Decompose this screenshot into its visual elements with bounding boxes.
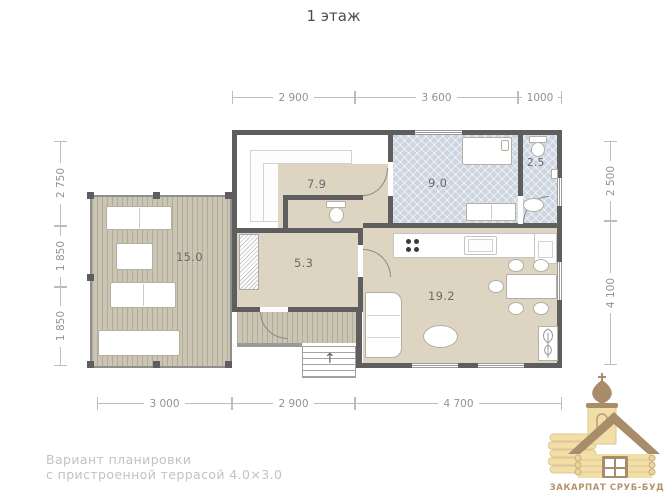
dimension: 3 000 <box>97 397 232 410</box>
chair <box>488 280 504 293</box>
dresser <box>466 203 516 221</box>
logo-graphic <box>548 372 666 478</box>
wall-cabinet <box>551 169 558 179</box>
wall <box>237 307 358 312</box>
window <box>557 262 562 300</box>
dimension-label: 3 000 <box>144 398 184 410</box>
terrace-post <box>87 192 94 199</box>
dimension-label: 4 700 <box>438 398 478 410</box>
plant-leaf <box>539 327 557 360</box>
dimension: 2 900 <box>232 91 355 104</box>
wardrobe <box>239 234 259 290</box>
wall <box>232 130 237 312</box>
dimension-label: 1 850 <box>55 236 67 276</box>
kitchen-sink-icon <box>464 236 497 255</box>
chair <box>533 259 549 272</box>
caption: Вариант планировки с пристроенной террас… <box>46 452 282 482</box>
toilet-bowl-icon <box>531 142 545 157</box>
wall <box>283 195 363 200</box>
chair <box>508 302 524 315</box>
dimension: 2 900 <box>232 397 355 410</box>
page-title: 1 этаж <box>0 7 667 25</box>
arrow-up-icon: ↑ <box>324 352 336 366</box>
dimension: 2 750 <box>54 141 67 226</box>
terrace-post <box>153 361 160 368</box>
wall <box>237 228 363 233</box>
caption-line2: с пристроенной террасой 4.0×3.0 <box>46 467 282 482</box>
door-opening <box>388 162 393 196</box>
dining-table <box>506 274 557 299</box>
dimension-label: 2 750 <box>55 163 67 203</box>
room-area-label: 9.0 <box>428 176 447 190</box>
dimension: 1000 <box>518 91 562 104</box>
room-area-label: 19.2 <box>428 289 455 303</box>
caption-line1: Вариант планировки <box>46 452 282 467</box>
window <box>412 363 458 368</box>
dimension: 4 100 <box>604 221 617 365</box>
dimension-label: 4 100 <box>605 273 617 313</box>
room-area-label: 15.0 <box>176 250 203 264</box>
chair <box>508 259 524 272</box>
terrace-table <box>116 243 153 270</box>
wall <box>363 223 562 228</box>
terrace-post <box>87 361 94 368</box>
dimension-label: 1000 <box>522 92 559 104</box>
floor-plan-page: 1 этаж ↑ <box>0 0 667 500</box>
room-area-label: 5.3 <box>294 256 313 270</box>
window <box>557 178 562 206</box>
chair <box>533 302 549 315</box>
dimension-label: 2 500 <box>605 161 617 201</box>
toilet-bowl-icon <box>329 207 344 223</box>
dimension-label: 3 600 <box>416 92 456 104</box>
dimension-label: 2 900 <box>273 92 313 104</box>
terrace-bench <box>98 330 180 356</box>
sofa <box>365 292 402 358</box>
room-area-label: 2.5 <box>527 157 545 169</box>
wall <box>283 195 288 233</box>
coffee-table <box>423 325 458 348</box>
sink-icon <box>523 198 544 212</box>
porch-deck <box>237 312 356 343</box>
dimension: 1 850 <box>54 287 67 366</box>
dimension: 4 700 <box>355 397 562 410</box>
wall <box>232 130 562 135</box>
wall <box>356 363 562 368</box>
terrace-post <box>153 192 160 199</box>
window <box>415 130 462 135</box>
dimension-label: 2 900 <box>273 398 313 410</box>
terrace-sofa <box>110 282 176 308</box>
porch-edge <box>237 343 302 347</box>
window <box>478 363 524 368</box>
house-icon <box>568 412 660 478</box>
dimension-label: 1 850 <box>55 306 67 346</box>
terrace-post <box>225 192 232 199</box>
stove-icon <box>406 239 411 244</box>
pillow <box>501 140 509 151</box>
terrace-post <box>225 361 232 368</box>
terrace-post <box>87 274 94 281</box>
logo-text: ЗАКАРПАТ СРУБ-БУД <box>548 483 666 493</box>
dimension: 1 850 <box>54 226 67 287</box>
wall <box>356 307 362 368</box>
dimension: 3 600 <box>355 91 518 104</box>
room-area-label: 7.9 <box>307 177 326 191</box>
company-logo: ЗАКАРПАТ СРУБ-БУД <box>548 372 666 493</box>
plant-icon <box>538 326 558 361</box>
dimension: 2 500 <box>604 141 617 221</box>
terrace-sofa <box>106 206 172 230</box>
